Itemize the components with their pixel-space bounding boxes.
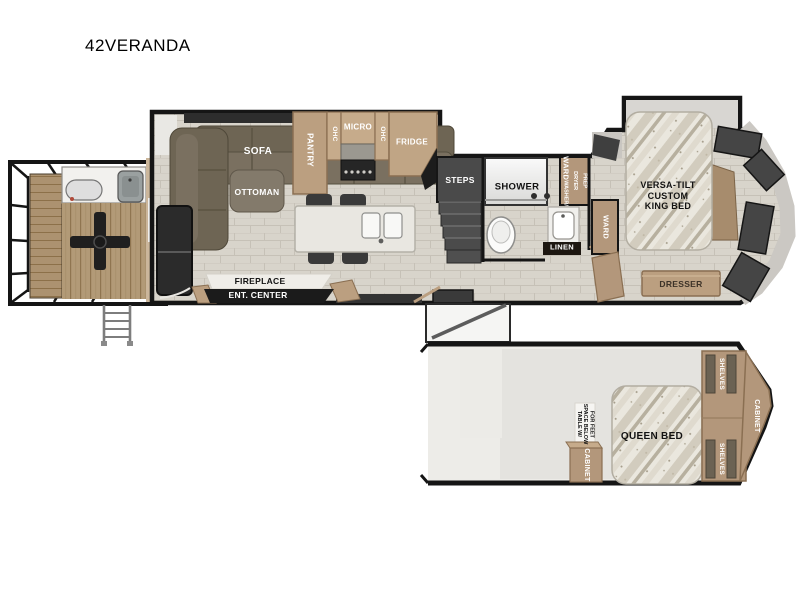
labels-layer: SOFA OTTOMAN PANTRY OHC MICRO OHC FRIDGE… bbox=[0, 0, 800, 600]
shelves-bottom-label: SHELVES bbox=[717, 443, 725, 475]
shelves-top-label: SHELVES bbox=[717, 358, 725, 390]
shower-label: SHOWER bbox=[495, 181, 540, 192]
ottoman-label: OTTOMAN bbox=[235, 187, 280, 197]
micro-label: MICRO bbox=[344, 122, 372, 131]
wd-prep-sub-label: WASHER/ DRYER PREP bbox=[562, 171, 587, 205]
fireplace-label: FIREPLACE bbox=[235, 276, 286, 286]
pantry-label: PANTRY bbox=[305, 133, 314, 167]
ward-label: WARD bbox=[601, 215, 610, 239]
wd-prep-label: WARDWASHER/ DRYER PREP bbox=[561, 156, 590, 206]
cabinet-rear-label: CABINET bbox=[752, 399, 760, 432]
ward-wd-label: WARD bbox=[561, 156, 570, 180]
dresser-label: DRESSER bbox=[659, 279, 702, 289]
linen-label: LINEN bbox=[550, 244, 574, 253]
steps-label: STEPS bbox=[445, 175, 474, 185]
ent-center-label: ENT. CENTER bbox=[228, 290, 287, 300]
queen-bed-label: QUEEN BED bbox=[621, 431, 683, 443]
ohc-right-label: OHC bbox=[378, 126, 386, 141]
ohc-left-label: OHC bbox=[330, 126, 338, 141]
table-note-label: TABLE W/ SPACE BELOW FOR FEET bbox=[575, 404, 594, 445]
fridge-label: FRIDGE bbox=[396, 137, 428, 146]
king-bed-label: VERSA-TILT CUSTOM KING BED bbox=[640, 180, 695, 212]
cabinet-front-label: CABINET bbox=[582, 448, 590, 481]
floorplan-page: 42VERANDA SOFA OTTOMAN PANTRY OHC MICRO … bbox=[0, 0, 800, 600]
sofa-label: SOFA bbox=[244, 146, 272, 158]
